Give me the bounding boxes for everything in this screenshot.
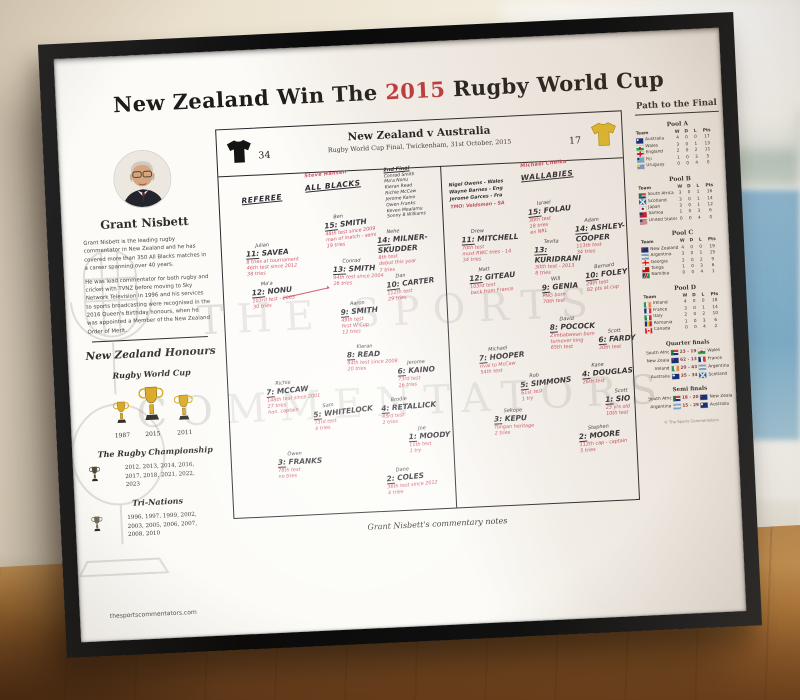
knockout-team-a: South Africa <box>648 396 671 402</box>
flag-ireland <box>671 365 678 370</box>
player-note: Michael7: Hooperrival to McCaw54th test <box>478 342 542 376</box>
player-note: Drew11: Mitchell70th testmost RWC tries … <box>461 226 525 265</box>
trophy-year: 2011 <box>177 429 193 437</box>
flag-south-africa <box>671 349 678 354</box>
title-prefix: New Zealand Win The <box>113 79 386 117</box>
flag-new-zealand <box>671 357 678 362</box>
pool-table: Pool DTeamWDLPtsIreland40018France30114I… <box>643 282 729 334</box>
pool-table: Pool ATeamWDLPtsAustralia40017Wales30113… <box>635 119 721 171</box>
flag-namibia <box>642 273 649 278</box>
flag-australia <box>672 373 679 378</box>
commentary-notes-panel: 34 17 New Zealand v Australia Rugby Worl… <box>215 110 640 519</box>
officials-block: Nigel Owens - WalesWayne Barnes - EngJer… <box>448 178 512 212</box>
trophy-icon <box>174 393 195 428</box>
flag-wales <box>698 348 705 353</box>
knockout-row: Australia35 - 34Scotland <box>647 371 731 380</box>
flag-england <box>637 151 644 156</box>
second-final-list: 2nd FinalConrad SmithMa'a NonuKieran Rea… <box>383 163 439 220</box>
flag-fiji <box>637 158 644 163</box>
pool-stat: 0 <box>683 161 692 168</box>
player-note: Sam5: Whitelock73rd test4 tries <box>312 397 377 432</box>
player-note: Ma'a12: Nonu103rd test - 200330 tries <box>251 276 315 310</box>
commentator-portrait <box>113 150 172 209</box>
flag-georgia <box>642 260 649 265</box>
pool-stat: 0 <box>704 215 718 222</box>
player-note: Sekope3: KepuTongan heritage2 tries <box>494 406 557 437</box>
flag-argentina <box>699 364 706 369</box>
player-note: Dane2: Coles36th test since 20124 tries <box>386 462 450 496</box>
player-number: 14: <box>377 235 391 246</box>
knockout-team-a: Australia <box>647 374 670 380</box>
pool-table: Pool CTeamWDLPtsNew Zealand40019Argentin… <box>640 228 726 280</box>
path-to-final-sidebar: Path to the Final Pool ATeamWDLPtsAustra… <box>634 98 733 425</box>
knockout-team-b: New Zealand <box>709 393 732 399</box>
handwritten-notes: Referee Steve HansenAll BlacksBen15: Smi… <box>218 157 639 518</box>
knockout-team-b: Wales <box>707 347 730 353</box>
rwc-trophies: 198720152011 <box>85 382 221 441</box>
pool-stat: 4 <box>700 325 709 332</box>
flag-south-africa <box>673 395 680 400</box>
pool-stat: 0 <box>691 325 700 332</box>
knockout-team-b: Argentina <box>708 363 731 369</box>
player-note: Joe1: Moody11th test1 try <box>408 422 472 454</box>
flag-australia <box>701 402 708 407</box>
pool-team-name: Canada <box>654 326 671 333</box>
pool-grid: TeamWDLPtsSouth Africa30116Scotland30114… <box>638 182 724 225</box>
pool-team: Uruguay <box>637 162 674 170</box>
trinations-trophy-icon <box>91 516 103 538</box>
knockout-team-b: France <box>708 355 731 361</box>
pool-stat: 0 <box>701 160 715 167</box>
flag-france <box>644 309 651 314</box>
path-heading: Path to the Final <box>634 98 719 116</box>
wb-heading: Wallabies <box>520 168 573 182</box>
knockout-score: 15 - 29 <box>682 402 699 408</box>
knockout-score: 62 - 13 <box>680 357 697 363</box>
player-note: Aaron9: Smith49th testfirst W Cup12 trie… <box>340 297 405 337</box>
rwc-trophy: 1987 <box>113 400 131 440</box>
trophy-icon <box>113 400 130 431</box>
sidebar-divider <box>92 336 208 342</box>
pool-team: Namibia <box>642 271 679 279</box>
flag-scotland <box>639 199 646 204</box>
pool-stat: 4 <box>692 161 701 168</box>
trophy-year: 2015 <box>145 431 161 439</box>
flag-new-zealand <box>700 394 707 399</box>
trophy-year: 1987 <box>115 432 131 440</box>
player-note: Stephen2: Moore112th cap - captain5 trie… <box>578 420 642 454</box>
picture-frame: New Zealand Win The 2015 Rugby World Cup… <box>38 12 762 658</box>
flag-uruguay <box>637 164 644 169</box>
player-note: Will9: GeniaPNG born70th test <box>541 272 605 305</box>
knockout-block: Quarter finalsSouth Africa23 - 19WalesNe… <box>646 338 732 380</box>
player-note: Brodie4: Retallick43rd test2 tries <box>380 393 444 426</box>
player-number: 13: <box>534 245 548 256</box>
flag-south-africa <box>639 193 646 198</box>
ab-heading: All Blacks <box>305 178 361 192</box>
pool-stat: 0 <box>677 216 686 223</box>
player-note: Jerome6: Kaino73rd test16 tries <box>397 357 461 389</box>
knockout-team-b: Australia <box>710 401 733 407</box>
knockout-team-b: Scotland <box>708 371 731 377</box>
trophy-icon <box>138 384 165 429</box>
rwc-title: Rugby World Cup <box>84 366 218 382</box>
website-url: thesportscommentators.com <box>110 609 197 620</box>
flag-italy <box>644 315 651 320</box>
championship-row: 2012, 2013, 2014, 2016, 2017, 2018, 2021… <box>89 457 224 491</box>
trinations-row: 1996, 1997, 1999, 2002, 2003, 2005, 2006… <box>91 507 226 541</box>
pool-grid: TeamWDLPtsAustralia40017Wales30113Englan… <box>636 128 722 171</box>
flag-japan <box>639 206 646 211</box>
commentator-name: Grant Nisbett <box>77 213 212 233</box>
championship-years: 2012, 2013, 2014, 2016, 2017, 2018, 2021… <box>125 461 204 490</box>
player-number: 14: <box>575 224 589 235</box>
player-note: Owen3: Franks78th testno tries <box>277 449 340 480</box>
knockout-score: 35 - 34 <box>681 373 698 379</box>
pool-team: Canada <box>645 326 682 334</box>
pool-grid: TeamWDLPtsNew Zealand40019Argentina30115… <box>641 237 727 280</box>
poster: New Zealand Win The 2015 Rugby World Cup… <box>54 28 747 643</box>
bio-paragraph: He was lead commentator for both rugby a… <box>85 272 212 336</box>
commentator-sidebar: Grant Nisbett Grant Nisbett is the leadi… <box>74 148 226 541</box>
flag-ireland <box>644 302 651 307</box>
pool-team: United States <box>640 217 677 225</box>
knockout-results: Quarter finalsSouth Africa23 - 19WalesNe… <box>646 338 733 410</box>
flag-scotland <box>699 372 706 377</box>
pool-tables: Pool ATeamWDLPtsAustralia40017Wales30113… <box>635 119 729 334</box>
knockout-team-a: New Zealand <box>646 358 669 364</box>
pool-stat: 1 <box>706 269 720 276</box>
flag-australia <box>636 138 643 143</box>
knockout-team-a: Ireland <box>647 366 670 372</box>
pool-stat: 0 <box>674 162 683 169</box>
pool-stat: 2 <box>709 324 723 331</box>
title-year: 2015 <box>385 77 446 105</box>
flag-canada <box>645 328 652 333</box>
flag-france <box>699 356 706 361</box>
flag-romania <box>645 321 652 326</box>
bio-paragraph: Grant Nisbett is the leading rugby comme… <box>83 234 208 273</box>
flag-wales <box>636 145 643 150</box>
flag-argentina <box>673 403 680 408</box>
knockout-title: Semi finals <box>648 384 732 394</box>
championship-trophy-icon <box>89 465 101 487</box>
rwc-trophy: 2011 <box>174 393 195 437</box>
player-note: Matt12: Giteau103rd testback from France <box>468 262 532 296</box>
commentator-bio: Grant Nisbett is the leading rugby comme… <box>78 234 216 337</box>
knockout-block: Semi finalsSouth Africa18 - 20New Zealan… <box>648 384 733 410</box>
flag-tonga <box>642 267 649 272</box>
pool-team-name: United States <box>649 217 677 225</box>
title-suffix: Rugby World Cup <box>445 66 665 101</box>
pool-team-name: Uruguay <box>646 163 665 170</box>
room-photo: New Zealand Win The 2015 Rugby World Cup… <box>0 0 800 700</box>
pool-stat: 0 <box>686 216 695 223</box>
knockout-score: 20 - 43 <box>680 365 697 371</box>
knockout-row: Argentina15 - 29Australia <box>649 401 733 410</box>
flag-samoa <box>640 212 647 217</box>
player-note: Rob5: Simmons61st test1 try <box>519 367 584 402</box>
knockout-score: 18 - 20 <box>682 395 699 401</box>
rwc-trophy: 2015 <box>138 384 165 438</box>
knockout-score: 23 - 19 <box>680 349 697 355</box>
pool-grid: TeamWDLPtsIreland40018France30114Italy20… <box>643 291 729 334</box>
pool-stat: 0 <box>688 270 697 277</box>
pool-stat: 4 <box>695 215 704 222</box>
knockout-team-a: South Africa <box>646 350 669 356</box>
flag-argentina <box>641 254 648 259</box>
knockout-title: Quarter finals <box>646 338 730 348</box>
honours-heading: New Zealand Honours <box>83 345 217 363</box>
poster-title: New Zealand Win The 2015 Rugby World Cup <box>55 64 721 120</box>
knockout-team-a: Argentina <box>649 404 672 410</box>
trinations-years: 1996, 1997, 1999, 2002, 2003, 2005, 2006… <box>127 511 206 540</box>
referee-label: Referee <box>241 192 282 205</box>
copyright-line: © The Sports Commentators <box>649 416 733 425</box>
flag-united-states <box>640 219 647 224</box>
pool-stat: 0 <box>679 271 688 278</box>
pool-table: Pool BTeamWDLPtsSouth Africa30116Scotlan… <box>638 173 724 225</box>
flag-new-zealand <box>641 248 648 253</box>
pool-team-name: Namibia <box>651 272 669 279</box>
pool-stat: 4 <box>697 270 706 277</box>
player-note: Julian11: Savea8 tries at tournament46th… <box>245 240 309 279</box>
pool-stat: 0 <box>682 325 691 332</box>
